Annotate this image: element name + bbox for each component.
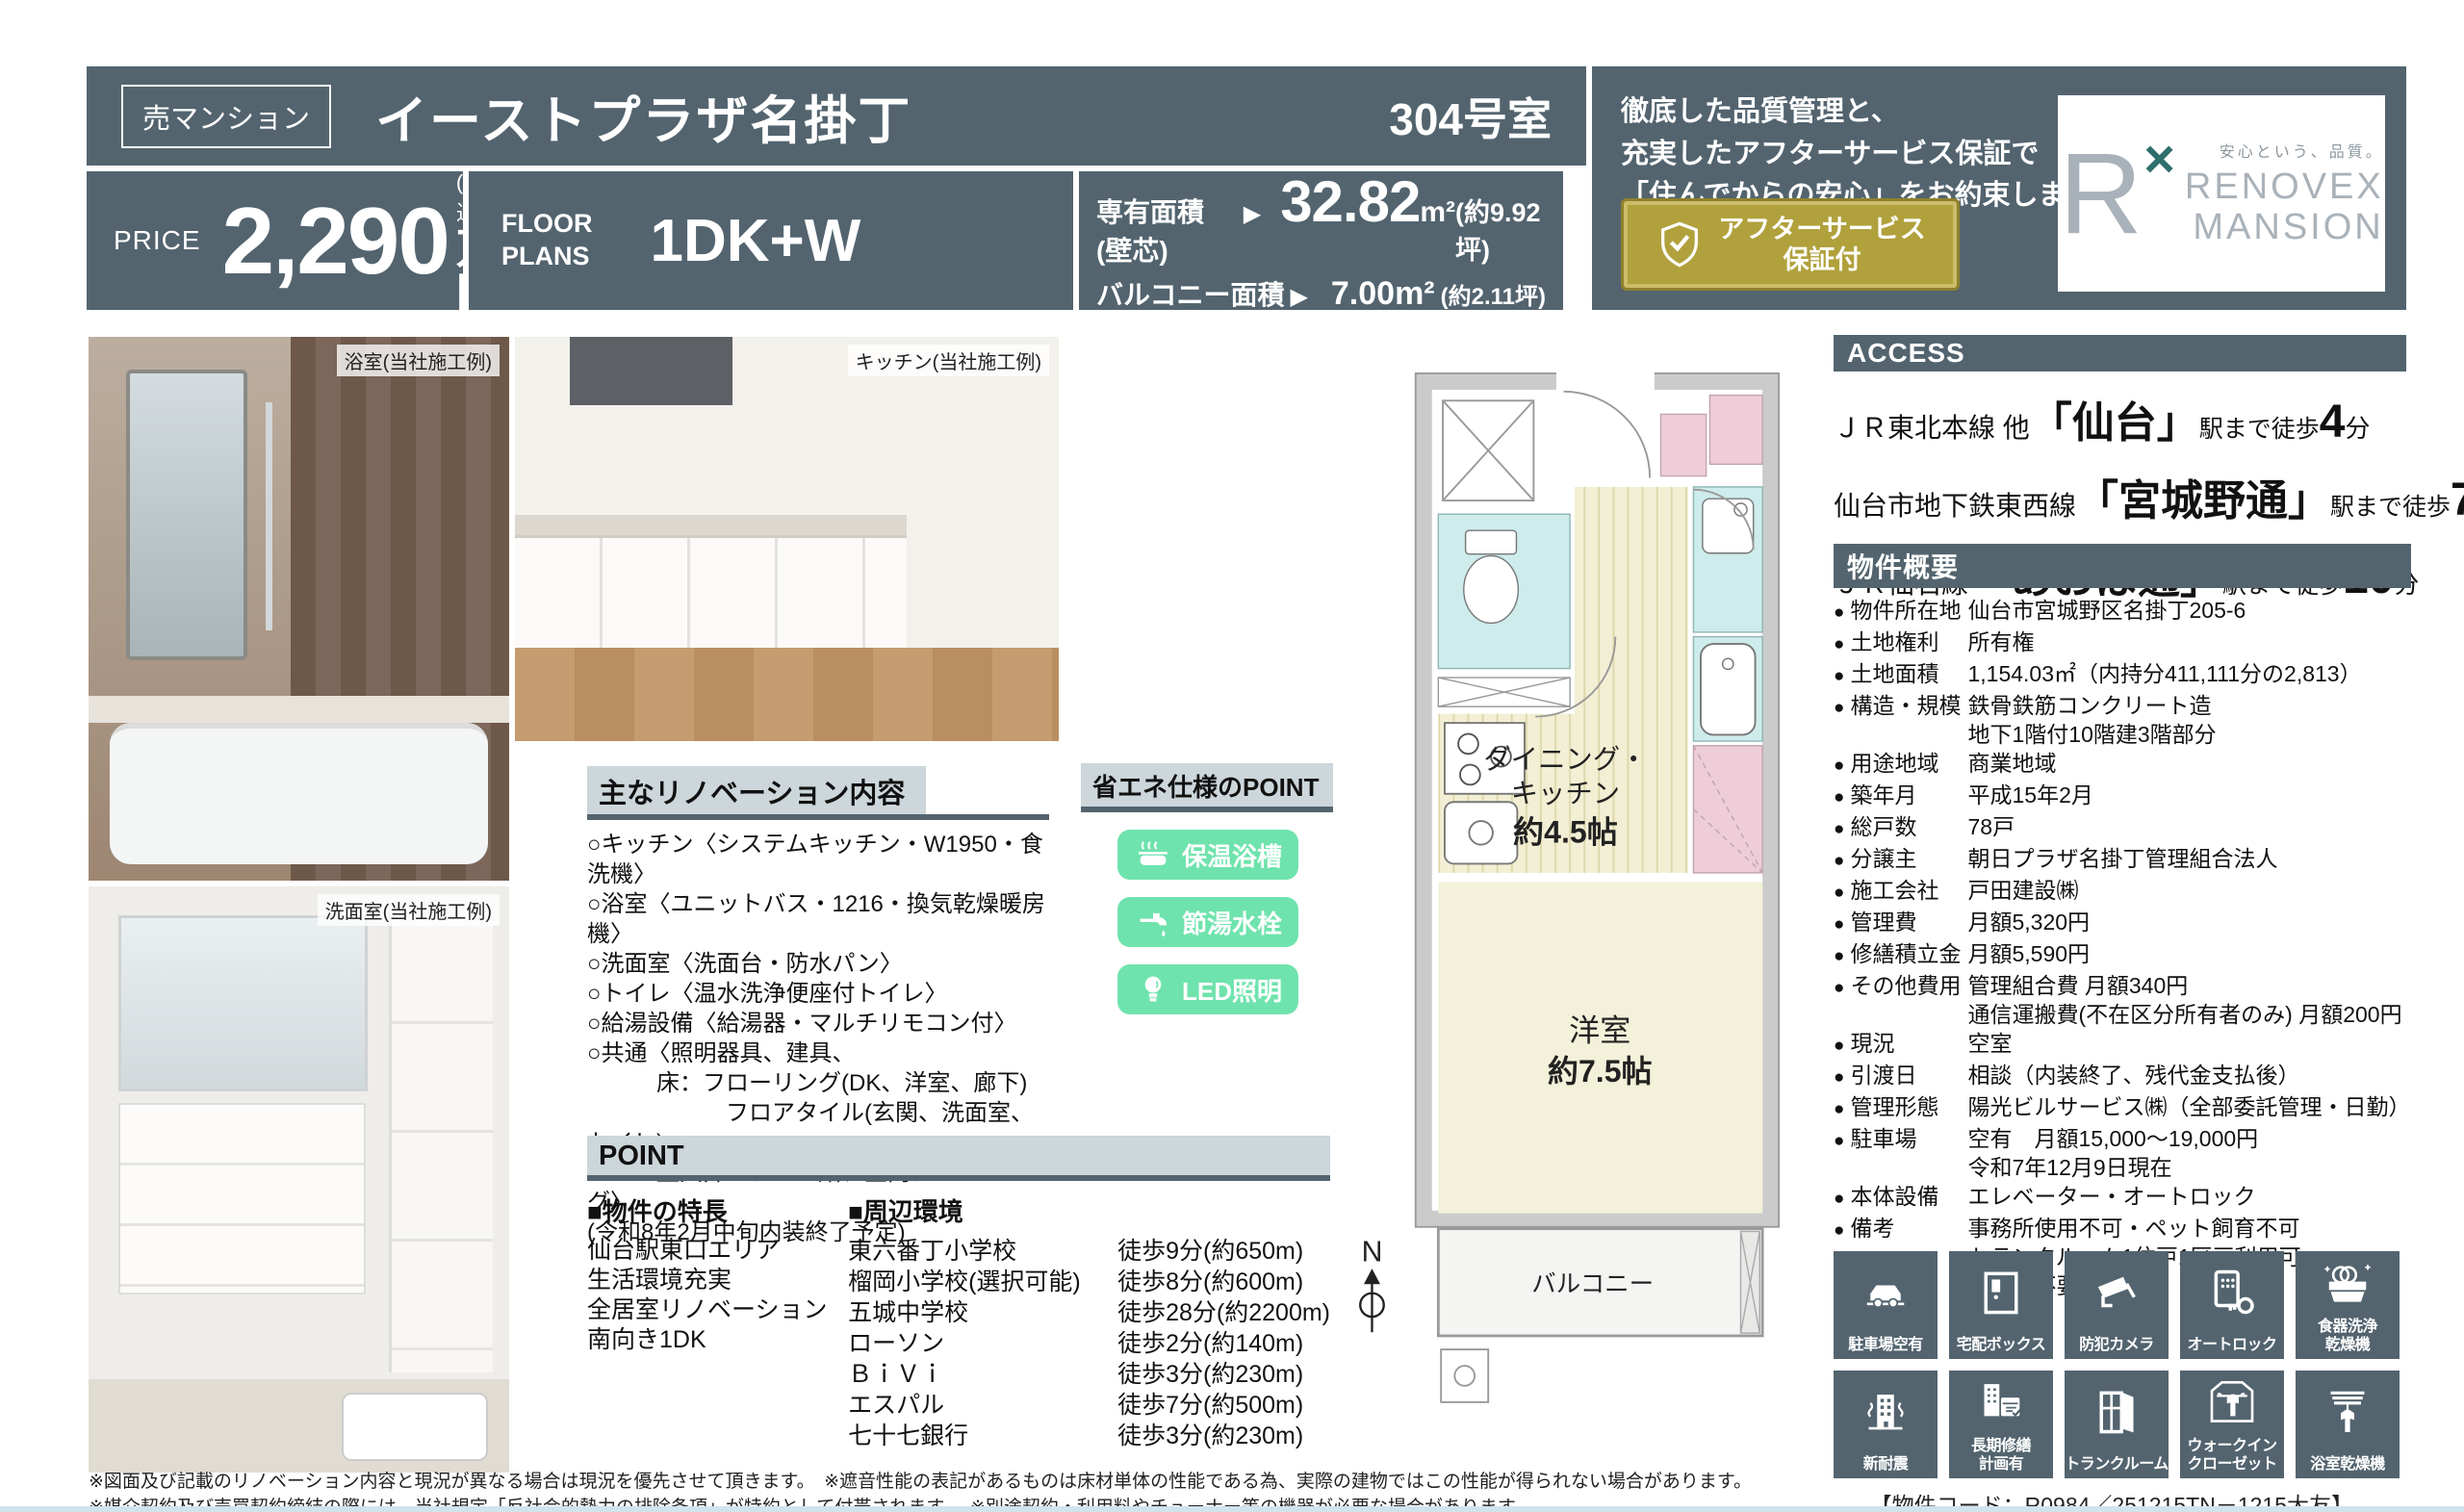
bullet-icon: ●: [1834, 1064, 1844, 1092]
walk-distance: 徒歩2分(約140m): [1117, 1328, 1303, 1359]
feature-item: 南向き1DK: [587, 1325, 848, 1355]
surrounding-item: ＢｉＶｉ徒歩3分(約230m): [848, 1359, 1330, 1390]
access-line: 仙台市地下鉄東西線「宮城野通」駅まで徒歩7分: [1834, 466, 2406, 527]
floorplan-washroom: [1693, 487, 1762, 632]
insulated-bathtub-icon: [1134, 835, 1172, 874]
renovation-item: ○浴室〈ユニットバス・1216・換気乾燥暖房機〉: [587, 889, 1049, 949]
spec-row: ●土地権利所有権: [1834, 628, 2411, 659]
trunk-room-icon: [2090, 1371, 2143, 1456]
car-icon: [1859, 1251, 1912, 1337]
vanity-mirror: [118, 915, 368, 1091]
feature-item: 仙台駅東口エリア: [587, 1236, 848, 1266]
spec-row: ●その他費用管理組合費 月額340円通信運搬費(不在区分所有者のみ) 月額200…: [1834, 971, 2411, 1029]
renovation-item: ○給湯設備〈給湯器・マルチリモコン付〉: [587, 1009, 1049, 1038]
spec-label: 施工会社: [1850, 876, 1967, 905]
amenity-grid: 駐車場空有 宅配ボックス 防犯カメラ オ: [1834, 1251, 2400, 1478]
floor-plan: N ダイニング・ キッチン 約4.5帖 洋室 約7.5帖 バルコニー: [1347, 332, 1829, 1473]
floorplan-bathroom: [1693, 637, 1762, 741]
walk-distance: 徒歩3分(約230m): [1117, 1421, 1303, 1451]
spec-value: 1,154.03㎡（内持分411,111分の2,813）: [1967, 659, 2411, 688]
walk-distance: 徒歩8分(約600m): [1117, 1267, 1303, 1297]
floorplan-bedroom: [1438, 882, 1762, 1213]
spec-row: ●現況空室: [1834, 1029, 2411, 1061]
amenity-delivery-box: 宅配ボックス: [1949, 1251, 2053, 1359]
spec-label: 分譲主: [1850, 844, 1967, 873]
spec-row: ●修繕積立金月額5,590円: [1834, 939, 2411, 971]
spec-label: 修繕積立金: [1850, 939, 1967, 968]
floorplan-closet: [1693, 746, 1762, 873]
spec-label: 構造・規模: [1850, 691, 1967, 720]
compass-north-icon: N: [1360, 1237, 1384, 1333]
photo-caption: キッチン(当社施工例): [848, 345, 1049, 376]
earthquake-resistant-building-icon: [1859, 1371, 1912, 1456]
place-name: 東六番丁小学校: [848, 1236, 1117, 1267]
spec-value: 空有 月額15,000〜19,000円令和7年12月9日現在: [1967, 1124, 2411, 1182]
amenity-trunk-room: トランクルーム: [2065, 1371, 2169, 1478]
surrounding-item: 七十七銀行徒歩3分(約230m): [848, 1421, 1330, 1451]
spec-label: 引渡日: [1850, 1061, 1967, 1089]
floor-plan-value: 1DK+W: [651, 207, 861, 275]
spec-row: ●施工会社戸田建設㈱: [1834, 876, 2411, 908]
renovation-item: 床：フローリング(DK、洋室、廊下): [587, 1068, 1049, 1098]
spec-value: エレベーター・オートロック: [1967, 1182, 2411, 1211]
spec-label: 現況: [1850, 1029, 1967, 1058]
amenity-label: ウォークイン クローゼット: [2187, 1438, 2276, 1474]
floor-plan-cell: FLOORPLANS 1DK+W: [469, 171, 1073, 310]
bullet-icon: ●: [1834, 942, 1844, 971]
spec-row: ●分譲主朝日プラザ名掛丁管理組合法人: [1834, 844, 2411, 876]
walk-distance: 徒歩9分(約650m): [1117, 1236, 1303, 1267]
eco-badge-label: 保温浴槽: [1182, 837, 1282, 873]
renovation-item: ○トイレ〈温水洗浄便座付トイレ〉: [587, 979, 1049, 1009]
bullet-icon: ●: [1834, 815, 1844, 844]
amenity-long-term-repair-plan: 長期修繕 計画有: [1949, 1371, 2053, 1478]
walk-distance: 徒歩7分(約500m): [1117, 1390, 1303, 1421]
amenity-label: 防犯カメラ: [2079, 1337, 2154, 1354]
dk-label: ダイニング・: [1484, 743, 1648, 774]
bullet-icon: ●: [1834, 783, 1844, 812]
eco-badge-bathtub: 保温浴槽: [1117, 830, 1298, 880]
amenity-label: 新耐震: [1863, 1456, 1909, 1474]
spec-row: ●築年月平成15年2月: [1834, 781, 2411, 812]
logo-tagline: 安心という、品質。: [2220, 139, 2384, 162]
exclusive-area-value: 32.82: [1280, 168, 1420, 235]
spec-row: ●総戸数78戸: [1834, 812, 2411, 844]
surroundings-column: ■周辺環境 東六番丁小学校徒歩9分(約650m)榴岡小学校(選択可能)徒歩8分(…: [848, 1192, 1330, 1451]
bullet-icon: ●: [1834, 1217, 1844, 1245]
balcony-area-label: バルコニー面積: [1096, 274, 1284, 313]
after-service-label: アフターサービス保証付: [1718, 214, 1925, 276]
svg-text:キッチン: キッチン: [1511, 778, 1620, 808]
bottom-accent-strip: [0, 1506, 2464, 1512]
logo-r-mark: R×: [2059, 136, 2143, 251]
price-amount: 2,290: [222, 187, 449, 295]
spec-row: ●引渡日相談（内装終了、残代金支払後）: [1834, 1061, 2411, 1092]
arrow-icon: ▶: [1244, 200, 1261, 228]
spec-label: 備考: [1850, 1214, 1967, 1243]
amenity-label: 食器洗浄 乾燥機: [2318, 1319, 2377, 1354]
amenity-parking: 駐車場空有: [1834, 1251, 1938, 1359]
spec-label: 物件所在地: [1850, 596, 1967, 625]
property-title: イーストプラザ名掛丁: [375, 78, 911, 154]
surrounding-item: 榴岡小学校(選択可能)徒歩8分(約600m): [848, 1267, 1330, 1297]
walk-distance: 徒歩3分(約230m): [1117, 1359, 1303, 1390]
spec-value: 戸田建設㈱: [1967, 876, 2411, 905]
logo-name: MANSION: [2193, 208, 2383, 248]
price-label: PRICE: [114, 225, 201, 256]
floorplan-elevator: [1443, 400, 1533, 500]
svg-text:約7.5帖: 約7.5帖: [1548, 1054, 1653, 1089]
balcony-label: バルコニー: [1531, 1271, 1654, 1298]
exclusive-area-row: 専有面積 (壁芯) ▶ 32.82 m² (約9.92坪): [1096, 168, 1546, 269]
place-name: ＢｉＶｉ: [848, 1359, 1117, 1390]
header-bar: 売マンション イーストプラザ名掛丁 304号室: [87, 66, 1586, 166]
svg-text:N: N: [1362, 1237, 1383, 1269]
amenity-label: 長期修繕 計画有: [1971, 1438, 2031, 1474]
spec-label: 築年月: [1850, 781, 1967, 809]
surrounding-item: エスパル徒歩7分(約500m): [848, 1390, 1330, 1421]
flyer-page: 売マンション イーストプラザ名掛丁 304号室 PRICE 2,290 (税込)…: [0, 0, 2464, 1512]
features-title: ■物件の特長: [587, 1192, 848, 1228]
place-name: エスパル: [848, 1390, 1117, 1421]
spec-value: 仙台市宮城野区名掛丁205-6: [1967, 596, 2411, 625]
place-name: 五城中学校: [848, 1297, 1117, 1328]
spec-row: ●駐車場空有 月額15,000〜19,000円令和7年12月9日現在: [1834, 1124, 2411, 1182]
arrow-icon: ▶: [1290, 283, 1307, 311]
eco-badge-label: LED照明: [1182, 972, 1282, 1008]
spec-value: 管理組合費 月額340円通信運搬費(不在区分所有者のみ) 月額200円: [1967, 971, 2411, 1029]
after-service-badge: アフターサービス保証付: [1621, 198, 1960, 291]
bedroom-label: 洋室: [1569, 1012, 1630, 1047]
renovation-item: ○洗面室〈洗面台・防水パン〉: [587, 949, 1049, 979]
balcony-area-row: バルコニー面積 ▶ 7.00m² (約2.11坪): [1096, 274, 1546, 313]
shield-icon: [1655, 219, 1705, 269]
balcony-area-tsubo: (約2.11坪): [1441, 277, 1546, 311]
renovation-item: ○キッチン〈システムキッチン・W1950・食洗機〉: [587, 830, 1049, 889]
exclusive-area-label: 専有面積 (壁芯): [1096, 192, 1238, 269]
bullet-icon: ●: [1834, 847, 1844, 876]
features-list: 仙台駅東口エリア生活環境充実全居室リノベーション南向き1DK: [587, 1236, 848, 1355]
water-saving-faucet-icon: [1134, 903, 1172, 941]
surroundings-list: 東六番丁小学校徒歩9分(約650m)榴岡小学校(選択可能)徒歩8分(約600m)…: [848, 1236, 1330, 1451]
exclusive-area-unit: m²: [1420, 196, 1455, 229]
spec-label: 用途地域: [1850, 749, 1967, 778]
security-camera-icon: [2090, 1251, 2143, 1337]
amenity-security-camera: 防犯カメラ: [2065, 1251, 2169, 1359]
spec-value: 鉄骨鉄筋コンクリート造地下1階付10階建3階部分: [1967, 691, 2411, 749]
price-cell: PRICE 2,290 (税込) 万円: [87, 171, 463, 310]
spec-label: その他費用: [1850, 971, 1967, 1000]
washroom-photo: 洗面室(当社施工例): [89, 886, 509, 1473]
room-number: 304号室: [1389, 85, 1552, 148]
area-cell: 専有面積 (壁芯) ▶ 32.82 m² (約9.92坪) バルコニー面積 ▶ …: [1079, 171, 1563, 310]
vanity-cabinet: [118, 1103, 366, 1294]
autolock-icon: [2205, 1251, 2259, 1337]
place-name: 七十七銀行: [848, 1421, 1117, 1451]
bullet-icon: ●: [1834, 1032, 1844, 1061]
exclusive-area-tsubo: (約9.92坪): [1455, 192, 1546, 267]
spec-label: 本体設備: [1850, 1182, 1967, 1211]
renovation-title: 主なリノベーション内容: [587, 766, 926, 814]
renovex-logo: R× 安心という、品質。 RENOVEX MANSION: [2058, 95, 2385, 292]
amenity-dishwasher: 食器洗浄 乾燥機: [2296, 1251, 2400, 1359]
photo-caption: 浴室(当社施工例): [337, 345, 500, 376]
kitchen-cabinets: [515, 535, 907, 655]
range-hood: [570, 337, 733, 405]
spec-value: 商業地域: [1967, 749, 2411, 778]
promo-block: 徹底した品質管理と、 充実したアフターサービス保証で 「住んでからの安心」をお約…: [1592, 66, 2406, 310]
spec-value: 所有権: [1967, 628, 2411, 656]
building-calendar-icon: [1974, 1371, 2028, 1438]
point-section: POINT ■物件の特長 仙台駅東口エリア生活環境充実全居室リノベーション南向き…: [587, 1136, 1330, 1451]
spec-label: 駐車場: [1850, 1124, 1967, 1153]
bullet-icon: ●: [1834, 1127, 1844, 1156]
access-title: ACCESS: [1834, 335, 2406, 372]
amenity-label: トランクルーム: [2065, 1456, 2169, 1474]
eco-badge-label: 節湯水栓: [1182, 905, 1282, 940]
spec-row: ●管理費月額5,320円: [1834, 908, 2411, 939]
floorplan-kitchen-sink: [1445, 802, 1517, 863]
eco-badge-faucet: 節湯水栓: [1117, 897, 1298, 947]
property-overview-section: 物件概要 ●物件所在地仙台市宮城野区名掛丁205-6●土地権利所有権●土地面積1…: [1834, 544, 2411, 1300]
surroundings-title: ■周辺環境: [848, 1192, 1330, 1228]
bullet-icon: ●: [1834, 879, 1844, 908]
dishwasher-icon: [2321, 1251, 2374, 1319]
eco-badge-led: LED照明: [1117, 964, 1298, 1014]
place-name: ローソン: [848, 1328, 1117, 1359]
spec-label: 管理形態: [1850, 1092, 1967, 1121]
amenity-label: オートロック: [2187, 1337, 2276, 1354]
surrounding-item: 東六番丁小学校徒歩9分(約650m): [848, 1236, 1330, 1267]
feature-item: 生活環境充実: [587, 1266, 848, 1295]
spec-value: 月額5,320円: [1967, 908, 2411, 936]
floor-plan-drawing: N ダイニング・ キッチン 約4.5帖 洋室 約7.5帖 バルコニー: [1347, 332, 1829, 1473]
spec-row: ●本体設備エレベーター・オートロック: [1834, 1182, 2411, 1214]
amenity-autolock: オートロック: [2180, 1251, 2284, 1359]
bullet-icon: ●: [1834, 630, 1844, 659]
bullet-icon: ●: [1834, 1185, 1844, 1214]
bathroom-dryer-icon: [2321, 1371, 2374, 1456]
bath-mirror: [126, 370, 247, 660]
floorplan-toilet: [1438, 514, 1570, 668]
amenity-label: 浴室乾燥機: [2310, 1456, 2385, 1474]
svg-text:約4.5帖: 約4.5帖: [1513, 815, 1618, 850]
bullet-icon: ●: [1834, 599, 1844, 628]
sale-type-badge: 売マンション: [121, 85, 331, 148]
spec-value: 相談（内装終了、残代金支払後）: [1967, 1061, 2411, 1089]
point-title: POINT: [587, 1136, 1330, 1175]
overview-rows: ●物件所在地仙台市宮城野区名掛丁205-6●土地権利所有権●土地面積1,154.…: [1834, 596, 2411, 1300]
walk-distance: 徒歩28分(約2200m): [1117, 1297, 1330, 1328]
spec-value: 空室: [1967, 1029, 2411, 1058]
spec-row: ●管理形態陽光ビルサービス㈱（全部委託管理・日勤）: [1834, 1092, 2411, 1124]
delivery-box-icon: [1974, 1251, 2028, 1337]
spec-value: 平成15年2月: [1967, 781, 2411, 809]
surrounding-item: ローソン徒歩2分(約140m): [848, 1328, 1330, 1359]
bullet-icon: ●: [1834, 694, 1844, 723]
amenity-earthquake-standard: 新耐震: [1834, 1371, 1938, 1478]
led-light-icon: [1134, 970, 1172, 1009]
spec-value: 月額5,590円: [1967, 939, 2411, 968]
kitchen-photo: キッチン(当社施工例): [515, 337, 1059, 741]
spec-value: 78戸: [1967, 812, 2411, 841]
spec-row: ●構造・規模鉄骨鉄筋コンクリート造地下1階付10階建3階部分: [1834, 691, 2411, 749]
amenity-walk-in-closet: ウォークイン クローゼット: [2180, 1371, 2284, 1478]
eco-title: 省エネ仕様のPOINT: [1081, 763, 1333, 807]
spec-label: 土地権利: [1850, 628, 1967, 656]
disclaimer-line: ※図面及び記載のリノベーション内容と現況が異なる場合は現況を優先させて頂きます。…: [89, 1467, 1752, 1493]
eco-section: 省エネ仕様のPOINT 保温浴槽 節湯水栓 LED照明: [1081, 763, 1333, 1014]
access-line: ＪＲ東北本線 他「仙台」駅まで徒歩4分: [1834, 388, 2406, 449]
place-name: 榴岡小学校(選択可能): [848, 1267, 1117, 1297]
bullet-icon: ●: [1834, 752, 1844, 781]
bathtub: [110, 723, 488, 864]
features-column: ■物件の特長 仙台駅東口エリア生活環境充実全居室リノベーション南向き1DK: [587, 1192, 848, 1451]
bullet-icon: ●: [1834, 910, 1844, 939]
amenity-label: 宅配ボックス: [1957, 1337, 2046, 1354]
spec-label: 管理費: [1850, 908, 1967, 936]
spec-value: 陽光ビルサービス㈱（全部委託管理・日勤）: [1967, 1092, 2411, 1121]
photo-caption: 洗面室(当社施工例): [318, 894, 500, 926]
balcony-area-value: 7.00m²: [1331, 275, 1435, 313]
spec-row: ●用途地域商業地域: [1834, 749, 2411, 781]
amenity-label: 駐車場空有: [1848, 1337, 1923, 1354]
bullet-icon: ●: [1834, 662, 1844, 691]
renovation-item: ○共通〈照明器具、建具、: [587, 1038, 1049, 1068]
spec-label: 土地面積: [1850, 659, 1967, 688]
feature-item: 全居室リノベーション: [587, 1295, 848, 1325]
amenity-bathroom-dryer: 浴室乾燥機: [2296, 1371, 2400, 1478]
bullet-icon: ●: [1834, 1095, 1844, 1124]
bullet-icon: ●: [1834, 974, 1844, 1003]
bathroom-photo: 浴室(当社施工例): [89, 337, 509, 881]
logo-name: RENOVEX: [2185, 167, 2384, 208]
spec-value: 朝日プラザ名掛丁管理組合法人: [1967, 844, 2411, 873]
walk-in-closet-icon: [2205, 1371, 2259, 1438]
floor-plans-label: FLOORPLANS: [501, 208, 593, 273]
spec-label: 総戸数: [1850, 812, 1967, 841]
spec-row: ●物件所在地仙台市宮城野区名掛丁205-6: [1834, 596, 2411, 628]
spec-row: ●土地面積1,154.03㎡（内持分411,111分の2,813）: [1834, 659, 2411, 691]
overview-title: 物件概要: [1834, 544, 2411, 588]
surrounding-item: 五城中学校徒歩28分(約2200m): [848, 1297, 1330, 1328]
